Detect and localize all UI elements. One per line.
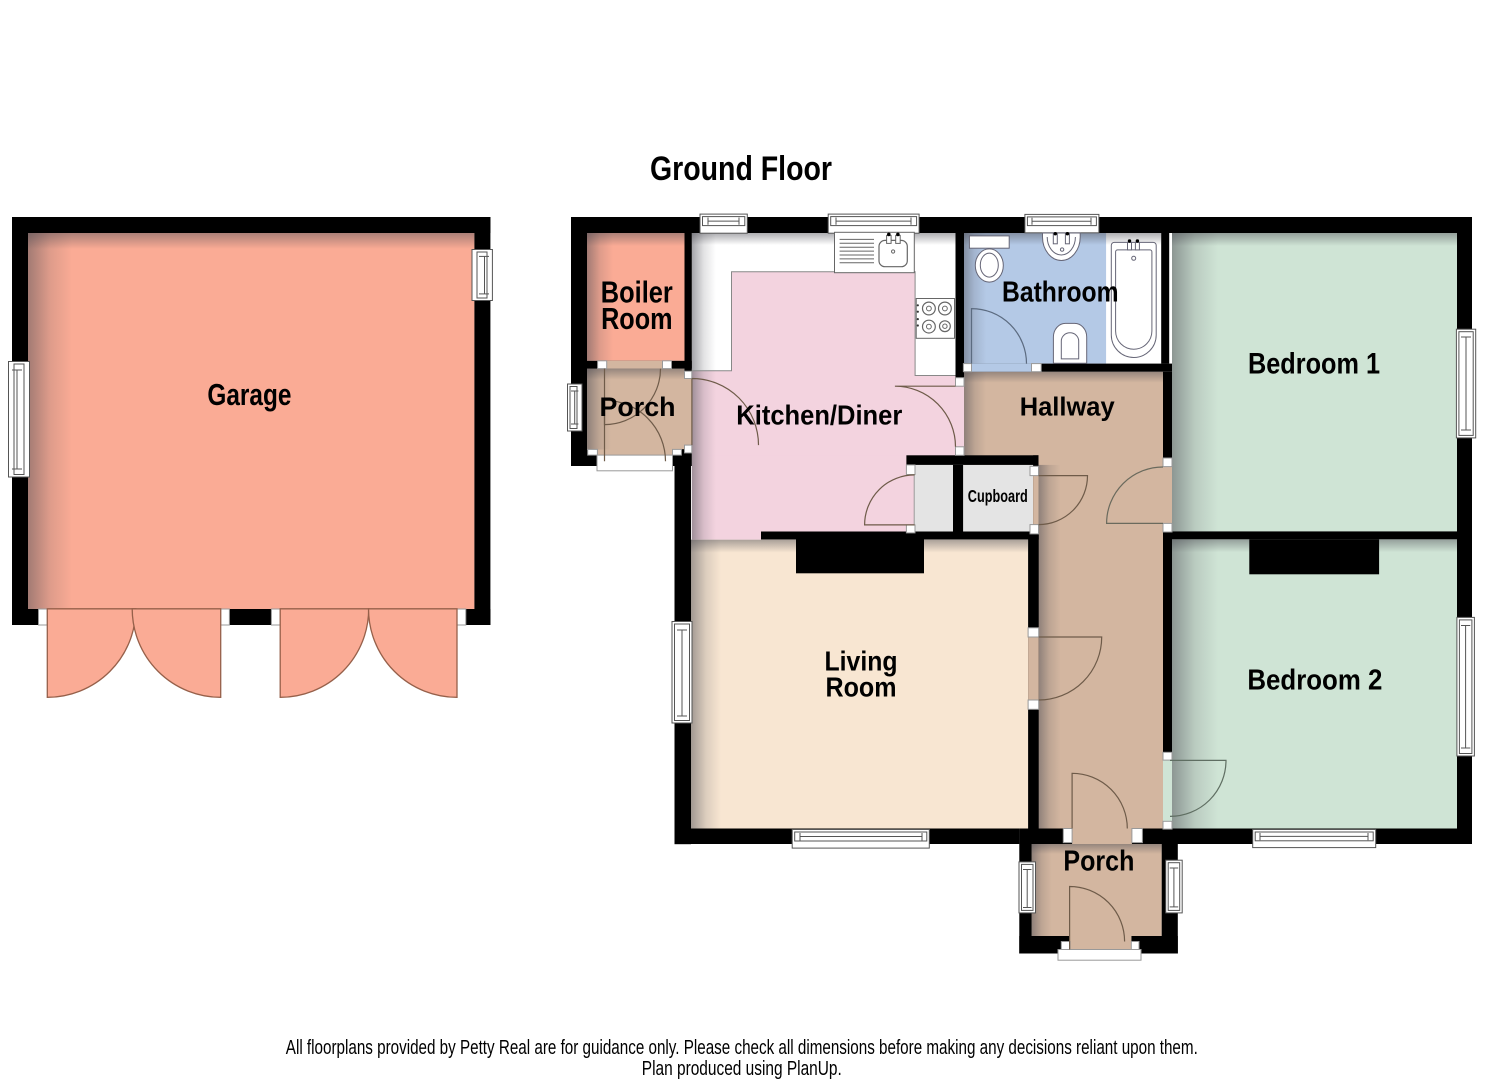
svg-text:Cupboard: Cupboard [968, 486, 1028, 506]
svg-text:Porch: Porch [600, 392, 676, 422]
svg-text:Bathroom: Bathroom [1002, 277, 1119, 309]
svg-text:Bedroom 2: Bedroom 2 [1247, 665, 1382, 697]
svg-text:Porch: Porch [1063, 845, 1134, 877]
svg-text:Room: Room [601, 301, 672, 336]
svg-text:Garage: Garage [207, 377, 291, 412]
svg-text:Bedroom 1: Bedroom 1 [1248, 348, 1380, 381]
svg-text:All floorplans provided by Pet: All floorplans provided by Petty Real ar… [286, 1037, 1198, 1059]
svg-text:Kitchen/Diner: Kitchen/Diner [736, 400, 902, 431]
svg-text:Plan produced using PlanUp.: Plan produced using PlanUp. [642, 1058, 842, 1080]
svg-text:Ground Floor: Ground Floor [650, 150, 832, 188]
svg-text:Room: Room [826, 672, 897, 703]
svg-text:Hallway: Hallway [1020, 394, 1116, 422]
